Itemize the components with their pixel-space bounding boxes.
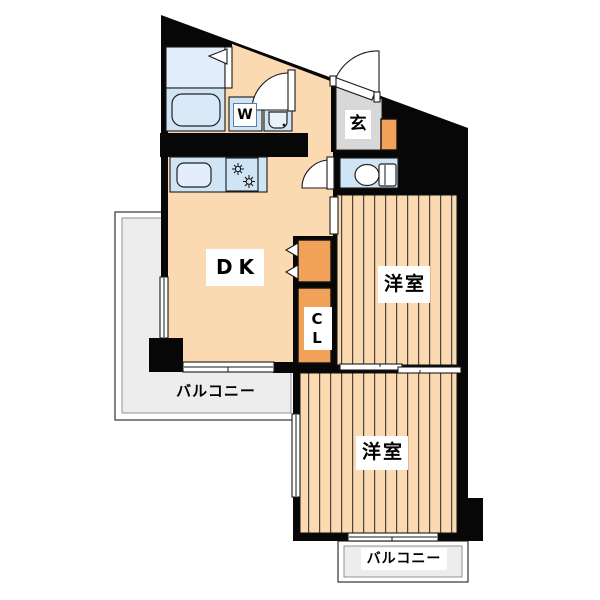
washer-label: W [233, 103, 257, 127]
wall-above-kitchen [160, 133, 308, 157]
balcony-bottom-label: バルコニー [361, 548, 447, 570]
balcony-left-label: バルコニー [170, 381, 262, 403]
western-room-lower-label: 洋室 [356, 436, 408, 470]
window-lower-room-bottom [348, 533, 438, 541]
entrance-label: 玄 [345, 110, 371, 139]
dk-label: DK [206, 249, 264, 286]
faucet-dot-icon [283, 124, 286, 127]
bathtub-icon [172, 94, 220, 126]
kitchen-sink-icon [177, 163, 211, 187]
kitchen-counter [170, 157, 267, 192]
window-dk-bottom [183, 362, 274, 372]
western-room-upper-label: 洋室 [378, 266, 430, 303]
entrance-door-post [330, 76, 336, 86]
closet-label: CL [304, 307, 332, 350]
toilet-door-leaf [327, 157, 334, 189]
hall-door-leaf [288, 70, 295, 111]
stove-unit [226, 158, 258, 191]
floor-plan-drawing [0, 0, 600, 600]
wall-dk-pillar [161, 338, 183, 372]
entrance-door-post [374, 92, 380, 102]
floor-plan: DK 玄 洋室 洋室 CL W バルコニー バルコニー [0, 0, 600, 600]
upper-room-door-opening [330, 197, 338, 234]
toilet-icon [355, 164, 396, 186]
shoe-cabinet [381, 119, 397, 150]
storage-cabinet [298, 240, 331, 282]
window-lower-room-left [292, 414, 300, 497]
wall-dk-bottom-right [273, 362, 300, 373]
window-dk-left [160, 277, 168, 338]
